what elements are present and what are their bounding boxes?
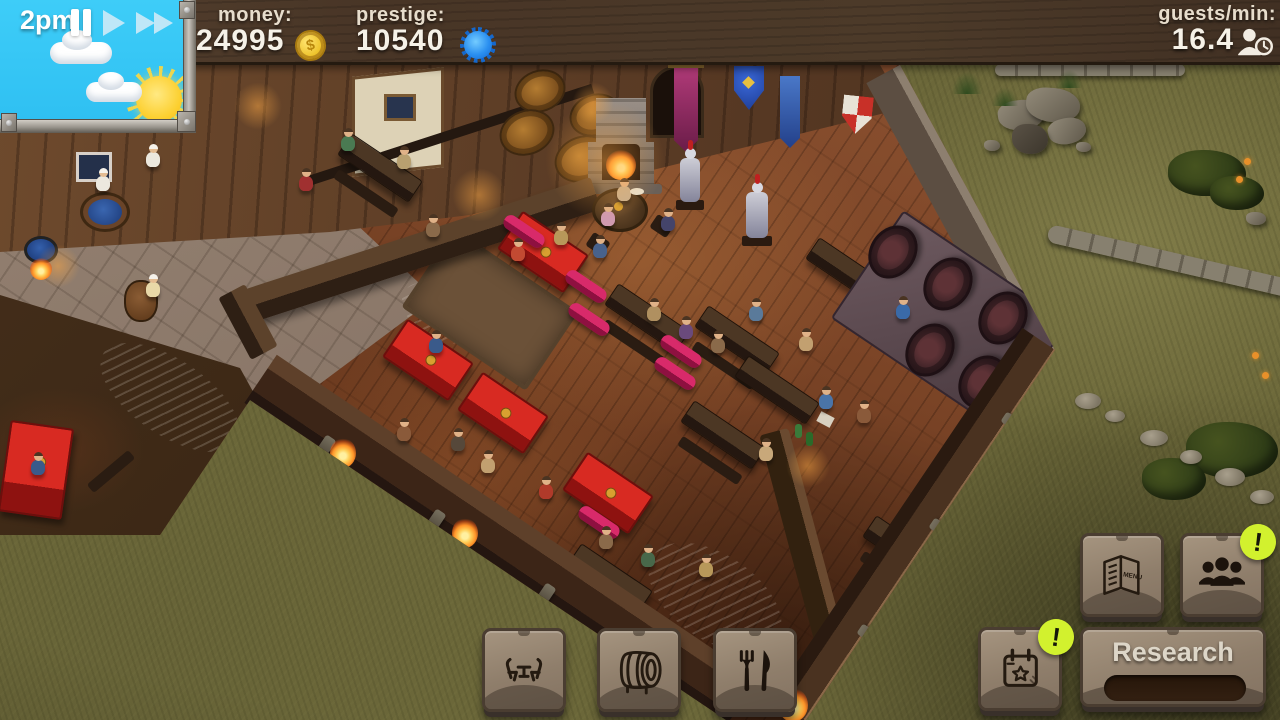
cook-fire — [30, 258, 52, 280]
guest-figure — [660, 208, 676, 234]
path-stone — [1250, 490, 1274, 504]
worker-figure — [895, 296, 911, 322]
pebble — [1246, 212, 1266, 225]
path-stone — [1215, 468, 1245, 486]
chef-figure — [145, 144, 161, 170]
lantern-glow — [234, 82, 282, 130]
play-icon — [103, 10, 125, 36]
drinks-button[interactable] — [597, 628, 681, 712]
grass-tuft — [952, 72, 982, 94]
guest-figure — [340, 128, 356, 154]
guest-figure — [640, 544, 656, 570]
helmet-plume — [755, 174, 760, 184]
knight-armor — [746, 192, 768, 238]
blue-banner — [780, 76, 800, 148]
research-progress-bar — [1104, 675, 1246, 701]
guest-figure — [698, 554, 714, 580]
path-stone — [1140, 430, 1168, 446]
cloud-puff — [98, 72, 124, 90]
grass-tuft — [992, 88, 1018, 106]
guest-figure — [396, 146, 412, 172]
candle-glow — [452, 168, 506, 222]
research-label: Research — [1112, 637, 1234, 668]
wash-water — [88, 199, 122, 225]
frame-rivet — [179, 1, 195, 19]
research-button[interactable]: Research — [1080, 627, 1266, 707]
pebble — [1076, 142, 1091, 152]
guest-figure — [710, 330, 726, 356]
guest-figure — [856, 400, 872, 426]
guest-figure — [510, 238, 526, 264]
guest-figure — [396, 418, 412, 444]
barrel-icon — [610, 641, 668, 699]
money-value: 24995 — [196, 24, 284, 58]
guest-figure — [553, 222, 569, 248]
chef-figure — [145, 274, 161, 300]
guest-figure — [538, 476, 554, 502]
frame-rivet — [177, 111, 196, 132]
pause-icon — [71, 9, 79, 36]
guest-figure — [428, 330, 444, 356]
chef-figure — [95, 168, 111, 194]
guest-figure — [425, 214, 441, 240]
bush — [1142, 458, 1206, 500]
guest-figure — [646, 298, 662, 324]
path-stone — [1105, 410, 1125, 422]
play-button[interactable] — [102, 9, 128, 37]
purple-banner — [674, 68, 698, 152]
table-chairs-icon — [496, 642, 552, 698]
prestige-badge-icon — [462, 29, 494, 61]
widget-frame — [0, 119, 196, 133]
flower — [1244, 158, 1251, 165]
frame-rivet — [1, 113, 17, 132]
guest-figure — [30, 452, 46, 478]
furniture-button[interactable] — [482, 628, 566, 712]
guests-value: 16.4 — [1172, 23, 1234, 57]
fast-forward-icon — [154, 12, 173, 34]
calendar-star-icon — [992, 641, 1048, 697]
guest-figure — [592, 235, 608, 261]
pause-button[interactable] — [69, 8, 95, 38]
candle-glow — [786, 444, 830, 488]
guest-figure — [480, 450, 496, 476]
knight-armor — [680, 158, 700, 202]
guest-figure — [678, 316, 694, 342]
prestige-value: 10540 — [356, 24, 444, 58]
staff-people-icon — [1193, 546, 1251, 604]
grass-tuft — [1056, 70, 1082, 88]
flower — [1252, 352, 1259, 359]
menu-book-icon: MENU — [1094, 547, 1150, 603]
bartender-figure — [298, 168, 314, 194]
menu-book-label: MENU — [1123, 571, 1143, 581]
lantern-glow — [572, 82, 614, 124]
menu-button[interactable]: MENU — [1080, 533, 1164, 617]
bottle — [795, 424, 802, 438]
guest-figure — [798, 328, 814, 354]
window — [384, 94, 416, 121]
game-viewport: money: 24995 prestige: 10540 guests/min:… — [0, 0, 1280, 720]
time-display: 2pm — [20, 5, 76, 36]
clock-weather-widget: 2pm — [0, 0, 197, 134]
flower — [1236, 176, 1243, 183]
rock — [1012, 124, 1048, 154]
path-stone — [1075, 393, 1101, 409]
helmet-plume — [688, 140, 693, 150]
guests-per-min-icon — [1236, 26, 1274, 60]
stone-wall — [995, 64, 1185, 76]
guest-figure — [598, 526, 614, 552]
guest-figure — [748, 298, 764, 324]
pause-icon — [83, 9, 91, 36]
fork-knife-icon — [727, 642, 783, 698]
flower — [1262, 372, 1269, 379]
guest-figure — [758, 438, 774, 464]
pebble — [984, 140, 1000, 151]
fast-forward-icon — [136, 12, 155, 34]
path-stone — [1180, 450, 1202, 464]
guest-figure — [450, 428, 466, 454]
guest-figure — [818, 386, 834, 412]
food-button[interactable] — [713, 628, 797, 712]
fast-forward-button[interactable] — [134, 9, 176, 37]
